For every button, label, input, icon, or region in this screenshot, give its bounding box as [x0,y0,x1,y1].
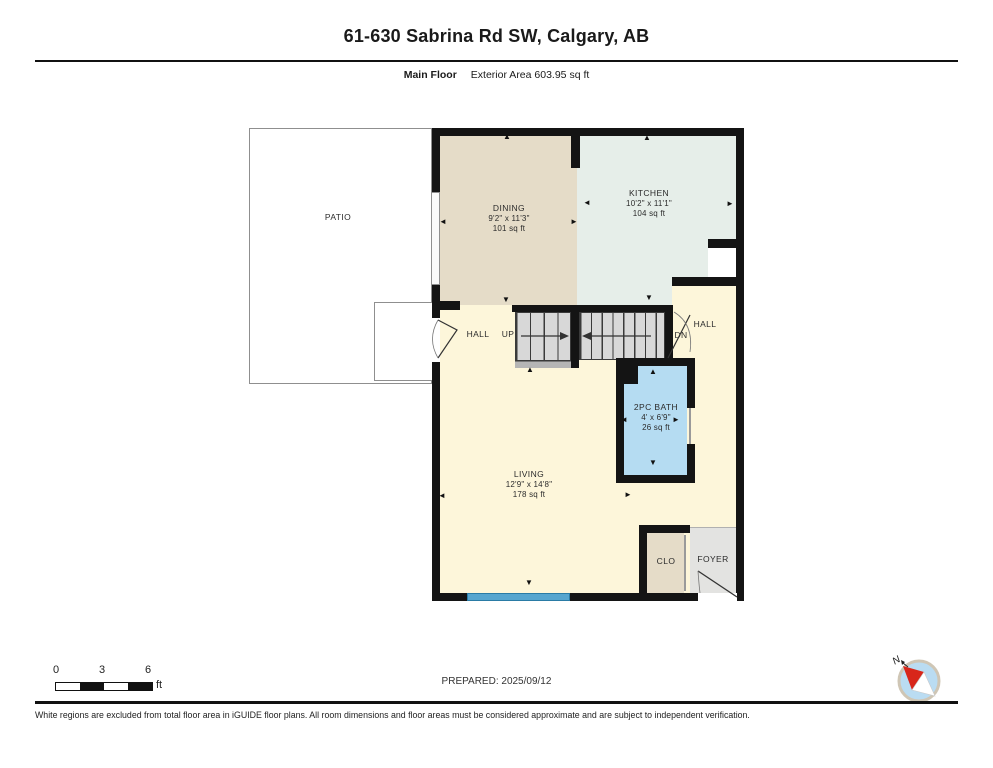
wall-stairs-top [512,305,672,312]
page-title: 61-630 Sabrina Rd SW, Calgary, AB [0,26,993,47]
wall-dining-kitchen-stub [571,136,580,168]
prepared-date: PREPARED: 2025/09/12 [0,676,993,687]
bath-door-line [689,408,691,444]
compass-north-label: N [891,654,903,668]
stairs-dn-label: DN [674,330,687,341]
label-stairs-up: UP [502,329,515,340]
label-kitchen: KITCHEN 10'2" x 11'1" 104 sq ft [626,188,672,220]
label-stairs-dn: DN [674,330,687,341]
measure-arrow-down-icon: ▼ [502,296,510,304]
stairs-landing [515,361,571,368]
stairs-up-label: UP [502,329,515,340]
plan-subtitle: Main FloorExterior Area 603.95 sq ft [0,69,993,81]
label-living: LIVING 12'9" x 14'8" 178 sq ft [506,469,552,501]
clo-door-line [684,535,686,591]
room-dims: 9'2" x 11'3" [488,214,529,225]
room-kitchen-ext [577,283,672,305]
label-dining: DINING 9'2" x 11'3" 101 sq ft [488,203,529,235]
wall-clo-top [639,525,690,533]
label-hall-right: HALL [694,319,717,330]
room-name: HALL [694,319,717,330]
living-window [467,593,570,601]
scale-tick-0: 0 [53,664,59,676]
measure-arrow-up-icon: ▲ [503,133,511,141]
label-foyer: FOYER [697,554,728,565]
measure-arrow-down-icon: ▼ [645,294,653,302]
hall-door-gap [432,318,440,362]
front-door-gap [698,593,737,601]
measure-arrow-right-icon: ► [726,200,734,208]
room-area: 104 sq ft [626,209,672,220]
wall-dining-hall-stub [432,301,460,310]
measure-arrow-up-icon: ▲ [649,368,657,376]
room-name: LIVING [506,469,552,480]
room-name: KITCHEN [626,188,672,199]
measure-arrow-left-icon: ◄ [583,199,591,207]
patio-step [374,302,434,381]
exterior-area-label: Exterior Area 603.95 sq ft [471,69,589,81]
dining-window [431,192,440,285]
scale-tick-6: 6 [145,664,151,676]
disclaimer-text: White regions are excluded from total fl… [35,710,965,720]
room-area: 26 sq ft [634,423,678,434]
label-patio: PATIO [325,212,351,223]
measure-arrow-right-icon: ► [672,416,680,424]
measure-arrow-left-icon: ◄ [620,416,628,424]
room-name: DINING [488,203,529,214]
wall-stairs-divider [571,305,579,368]
measure-arrow-up-icon: ▲ [643,134,651,142]
room-area: 178 sq ft [506,490,552,501]
header-rule [35,60,958,62]
scale-tick-3: 3 [99,664,105,676]
wall-kitchen-hall [672,277,736,286]
measure-arrow-right-icon: ► [624,491,632,499]
room-name: 2PC BATH [634,402,678,413]
room-name: HALL [467,329,490,340]
measure-arrow-down-icon: ▼ [649,459,657,467]
room-dims: 12'9" x 14'8" [506,480,552,491]
room-dims: 10'2" x 11'1" [626,199,672,210]
stairs-up [515,312,571,361]
room-name: PATIO [325,212,351,223]
wall-bath-notch [624,366,638,384]
measure-arrow-right-icon: ► [570,218,578,226]
floor-label: Main Floor [404,69,457,81]
floorplan-page: 61-630 Sabrina Rd SW, Calgary, AB Main F… [0,0,993,768]
room-area: 101 sq ft [488,224,529,235]
footer-rule [35,701,958,704]
stairs-down [579,312,665,360]
measure-arrow-down-icon: ▼ [525,579,533,587]
measure-arrow-left-icon: ◄ [439,218,447,226]
wall-outer-top [432,128,744,136]
room-name: CLO [657,556,676,567]
wall-kitchen-niche-top [708,239,736,248]
kitchen-niche [708,248,736,277]
label-clo: CLO [657,556,676,567]
room-name: FOYER [697,554,728,565]
label-hall-left: HALL [467,329,490,340]
wall-outer-right [736,128,744,601]
wall-clo-left [639,525,647,593]
measure-arrow-left-icon: ◄ [438,492,446,500]
measure-arrow-up-icon: ▲ [526,366,534,374]
